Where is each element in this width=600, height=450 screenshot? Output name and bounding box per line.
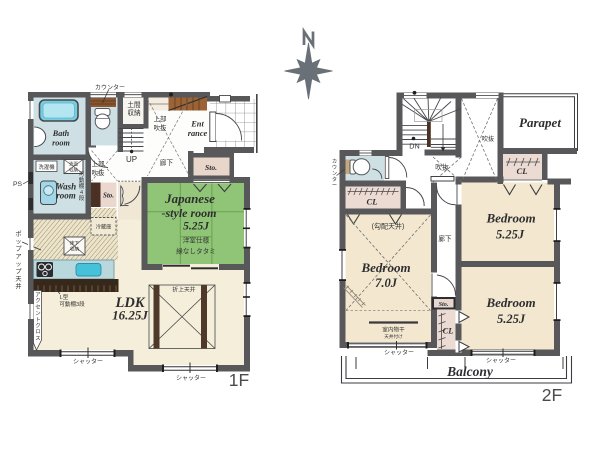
svg-text:吹抜: 吹抜: [435, 163, 449, 172]
svg-text:棚: 棚: [79, 182, 85, 190]
svg-text:可動棚3段: 可動棚3段: [59, 300, 85, 308]
svg-text:L型: L型: [60, 293, 69, 301]
svg-text:ス: ス: [35, 335, 40, 342]
svg-text:ポ: ポ: [15, 230, 21, 238]
svg-text:Sto.: Sto.: [205, 163, 217, 172]
svg-text:7.0J: 7.0J: [375, 276, 398, 290]
svg-text:ア: ア: [35, 292, 40, 299]
svg-text:Sto.: Sto.: [103, 192, 114, 200]
svg-text:room: room: [52, 139, 70, 148]
svg-text:CL: CL: [443, 327, 454, 336]
svg-text:2F: 2F: [542, 385, 562, 405]
svg-text:5.25J: 5.25J: [183, 221, 210, 233]
svg-text:Bath: Bath: [52, 129, 70, 138]
svg-text:Balcony: Balcony: [446, 364, 494, 379]
svg-text:折上天井: 折上天井: [172, 286, 195, 294]
svg-text:5.25J: 5.25J: [497, 312, 526, 326]
svg-text:Bedroom: Bedroom: [485, 295, 535, 310]
svg-text:ウ: ウ: [332, 163, 337, 171]
svg-text:シャッター: シャッター: [176, 374, 206, 382]
svg-text:シャッター: シャッター: [384, 349, 414, 357]
svg-text:廊下: 廊下: [438, 234, 452, 243]
svg-text:収納: 収納: [127, 108, 141, 117]
svg-text:上部: 上部: [154, 114, 167, 123]
svg-text:Ent: Ent: [190, 120, 204, 129]
svg-text:16.25J: 16.25J: [112, 308, 148, 323]
svg-text:プ: プ: [15, 246, 22, 253]
svg-text:動: 動: [79, 176, 85, 184]
svg-text:ア: ア: [15, 254, 21, 261]
svg-text:Parapet: Parapet: [519, 115, 561, 130]
svg-text:吹抜: 吹抜: [92, 168, 105, 177]
svg-text:冷蔵庫: 冷蔵庫: [96, 223, 112, 231]
svg-text:カ: カ: [332, 158, 337, 165]
svg-text:Bedroom: Bedroom: [485, 211, 535, 226]
svg-text:Japanese: Japanese: [164, 191, 215, 206]
svg-text:洋室仕様: 洋室仕様: [183, 236, 210, 245]
svg-text:カウンター: カウンター: [95, 84, 125, 92]
svg-text:シャッター: シャッター: [73, 358, 103, 366]
svg-text:室内物干: 室内物干: [382, 326, 405, 334]
svg-text:DN: DN: [409, 142, 419, 151]
svg-text:収納: 収納: [70, 246, 80, 253]
svg-text:吹抜: 吹抜: [482, 135, 494, 143]
svg-text:吹抜: 吹抜: [154, 123, 167, 132]
svg-text:ク: ク: [35, 323, 40, 330]
svg-text:洗濯機: 洗濯機: [38, 163, 55, 171]
svg-text:収納: 収納: [69, 167, 78, 174]
svg-text:井: 井: [15, 283, 21, 291]
svg-text:可: 可: [79, 171, 85, 178]
svg-text:ー: ー: [332, 183, 337, 189]
svg-text:UP: UP: [126, 155, 137, 164]
svg-text:ン: ン: [35, 311, 40, 317]
svg-text:洗面: 洗面: [69, 161, 78, 168]
svg-text:セ: セ: [35, 304, 40, 311]
svg-text:1F: 1F: [229, 370, 249, 390]
svg-text:ロ: ロ: [35, 330, 40, 336]
svg-text:5.25J: 5.25J: [496, 228, 525, 242]
svg-text:CL: CL: [367, 197, 378, 207]
svg-text:天: 天: [15, 276, 21, 283]
svg-text:room: room: [56, 191, 76, 201]
svg-text:上部: 上部: [92, 159, 105, 168]
svg-text:廊下: 廊下: [160, 158, 174, 167]
svg-text:(勾配天井): (勾配天井): [372, 222, 405, 231]
svg-text:ッ: ッ: [15, 239, 21, 246]
svg-text:土間: 土間: [127, 100, 141, 109]
svg-text:-style room: -style room: [162, 206, 217, 220]
svg-text:Bedroom: Bedroom: [360, 260, 410, 275]
svg-text:rance: rance: [188, 129, 208, 138]
svg-text:タ: タ: [332, 175, 337, 183]
svg-text:縁なしタタミ: 縁なしタタミ: [176, 247, 216, 256]
svg-text:ト: ト: [35, 317, 40, 323]
svg-text:段: 段: [79, 194, 85, 202]
svg-text:ク: ク: [35, 298, 40, 305]
svg-text:床下: 床下: [70, 240, 80, 247]
svg-text:天井付け: 天井付け: [384, 333, 403, 340]
svg-text:CL: CL: [517, 166, 528, 176]
svg-text:PS: PS: [13, 181, 23, 188]
svg-text:ッ: ッ: [15, 261, 21, 268]
svg-text:Sto.: Sto.: [439, 301, 449, 308]
svg-text:プ: プ: [15, 269, 22, 276]
